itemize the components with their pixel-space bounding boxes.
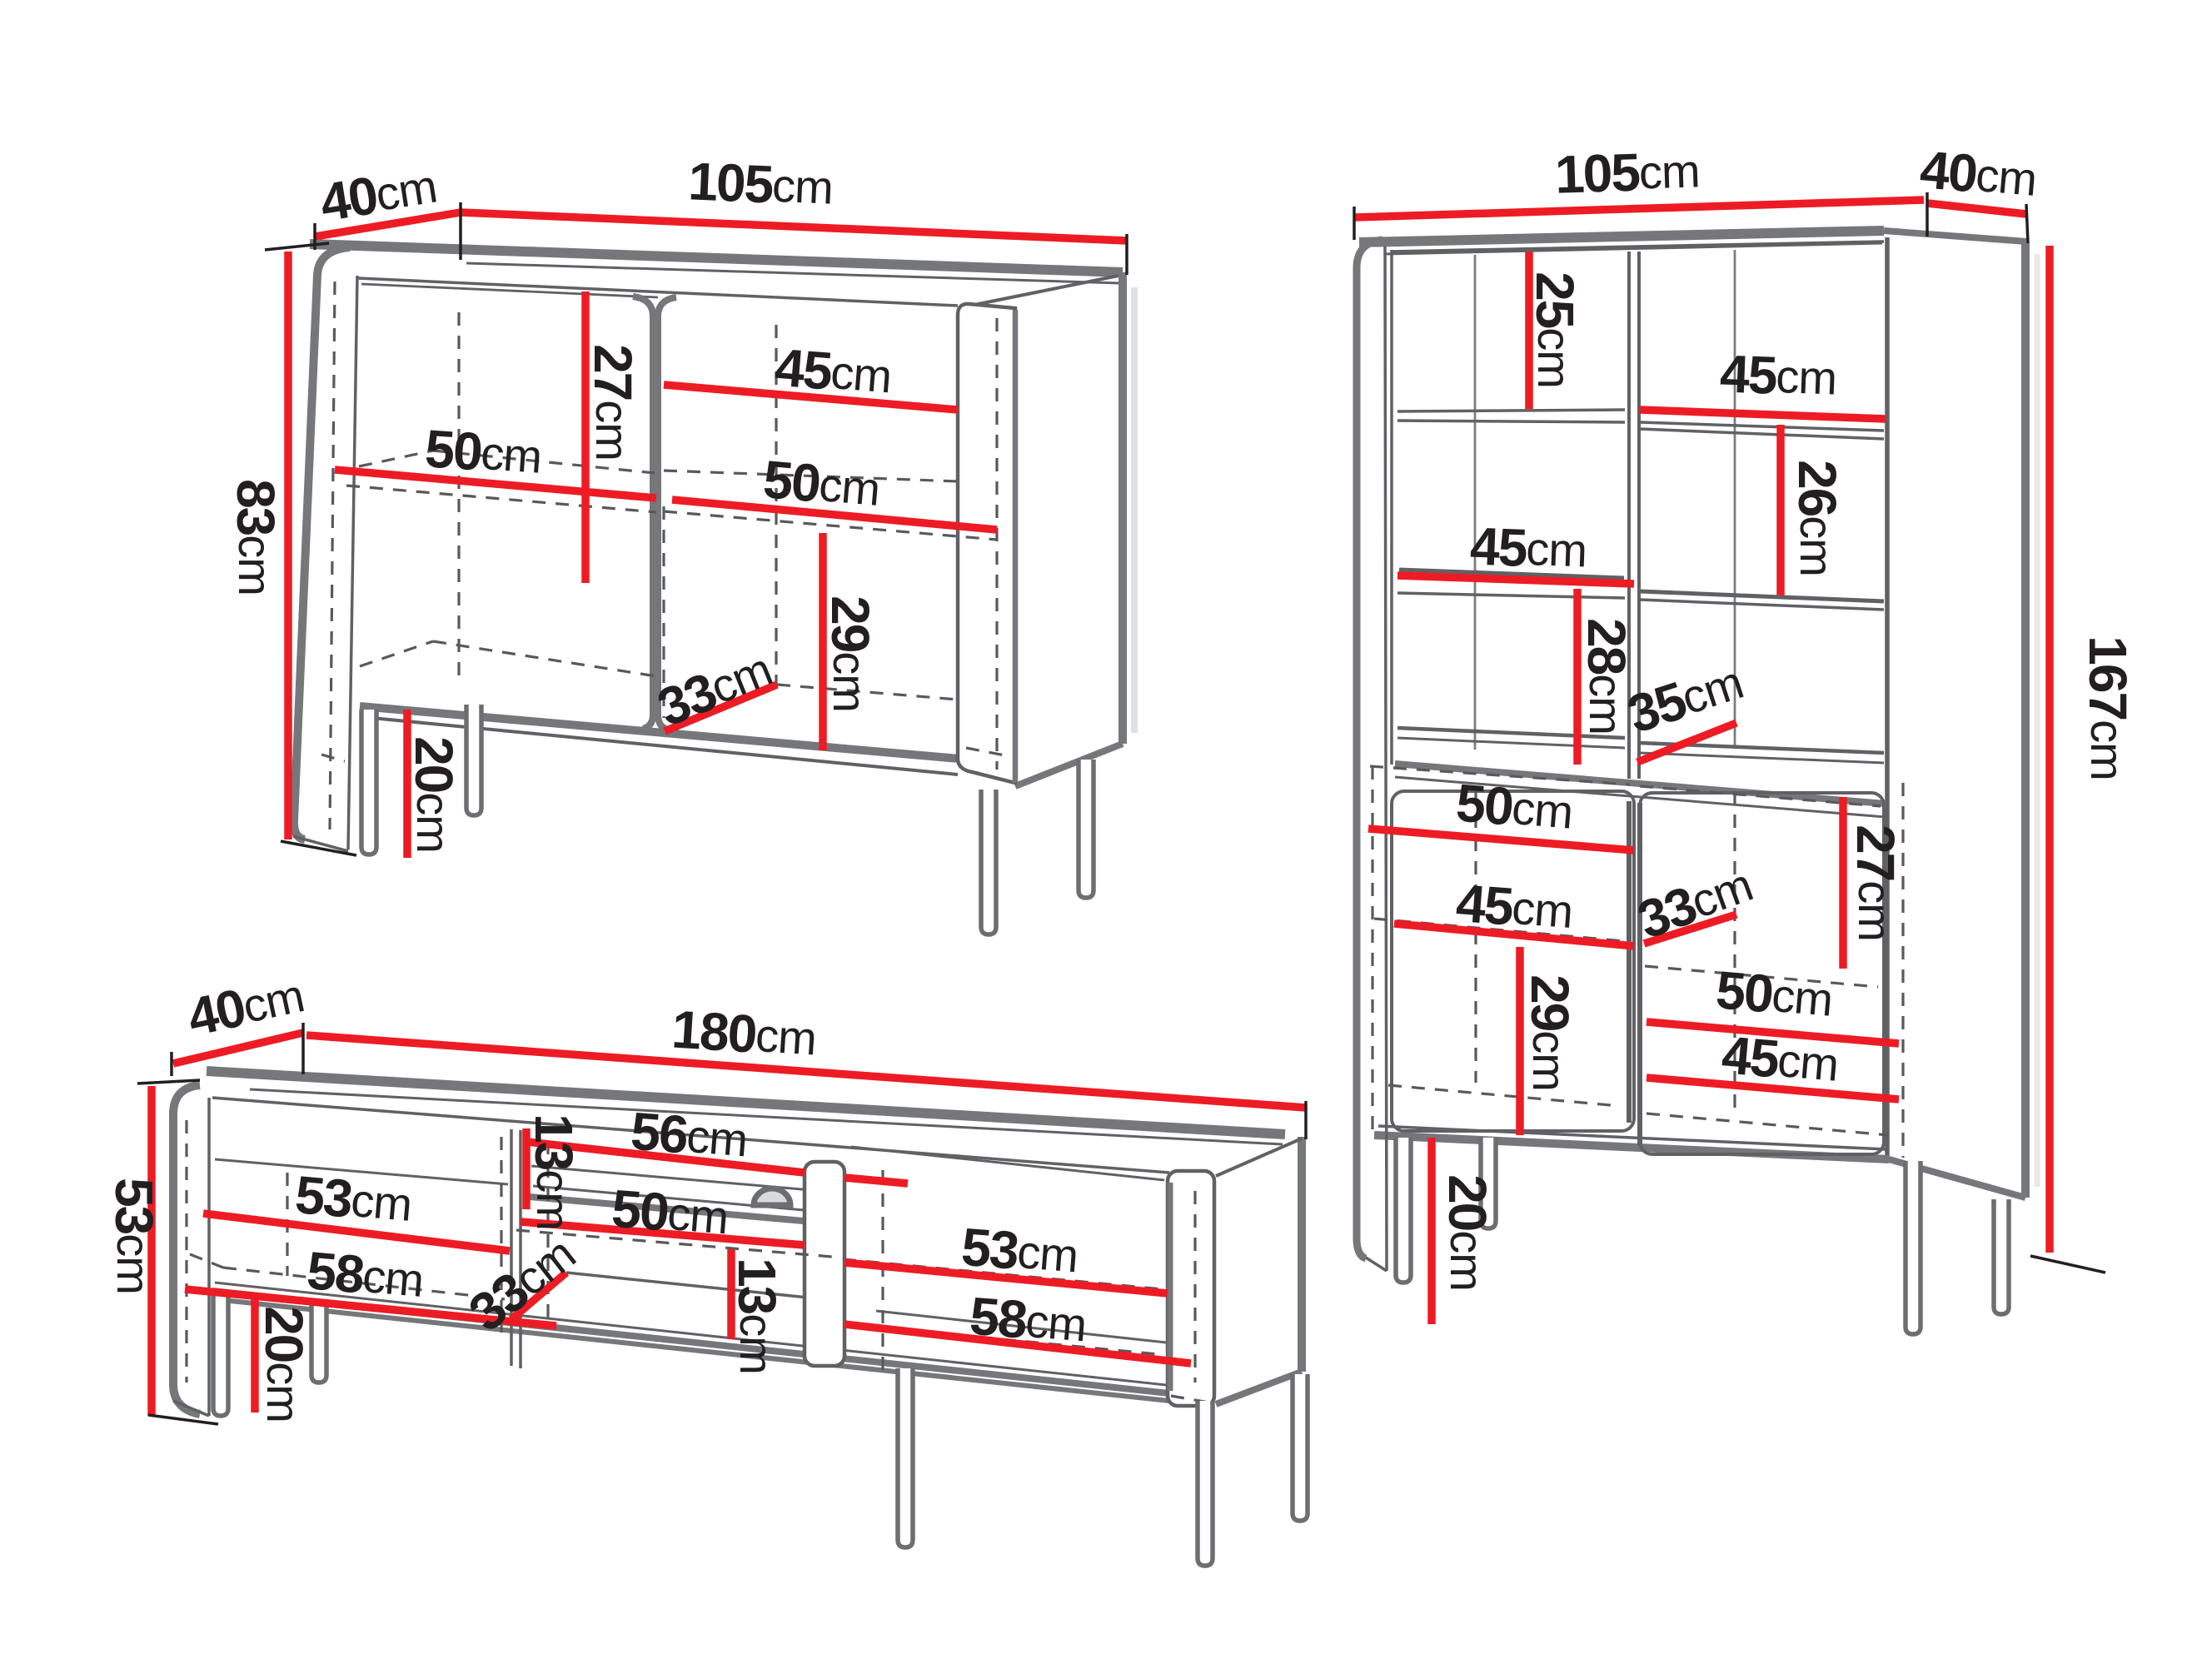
svg-text:83cm: 83cm [226, 479, 286, 595]
svg-text:25cm: 25cm [1525, 272, 1585, 388]
svg-text:29cm: 29cm [1520, 974, 1580, 1091]
svg-text:45cm: 45cm [1719, 343, 1837, 407]
svg-text:50cm: 50cm [423, 418, 544, 486]
svg-text:20cm: 20cm [1437, 1174, 1497, 1291]
svg-text:26cm: 26cm [1787, 460, 1847, 576]
svg-text:105cm: 105cm [687, 151, 834, 217]
svg-text:45cm: 45cm [1469, 516, 1587, 580]
svg-text:27cm: 27cm [583, 344, 643, 461]
svg-text:167cm: 167cm [2078, 635, 2138, 780]
svg-text:53cm: 53cm [104, 1178, 164, 1294]
svg-text:29cm: 29cm [820, 595, 880, 712]
svg-text:20cm: 20cm [404, 736, 464, 853]
svg-text:105cm: 105cm [1554, 140, 1701, 204]
svg-text:28cm: 28cm [1577, 618, 1637, 735]
svg-text:20cm: 20cm [254, 1306, 314, 1422]
svg-text:13cm: 13cm [524, 1113, 584, 1230]
svg-text:13cm: 13cm [727, 1258, 787, 1374]
svg-text:27cm: 27cm [1846, 825, 1906, 941]
